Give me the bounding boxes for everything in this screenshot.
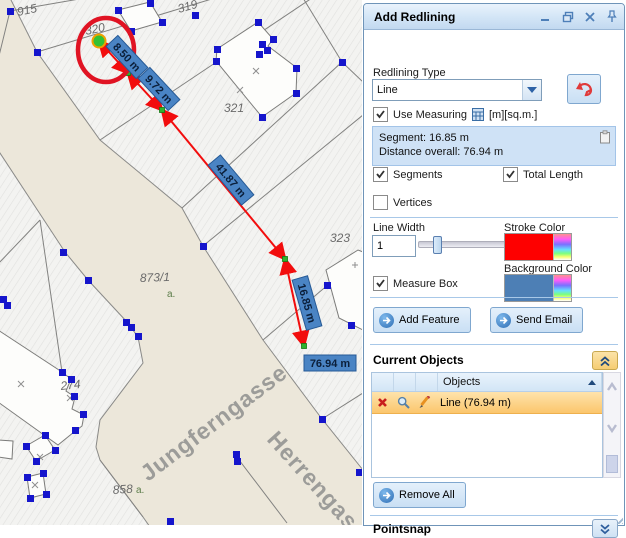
pin-icon[interactable] (606, 10, 618, 23)
table-header[interactable]: Objects (372, 373, 602, 392)
use-measuring-checkbox[interactable] (373, 107, 388, 122)
clipboard-icon[interactable] (599, 130, 611, 144)
segments-row: Segments (373, 167, 443, 182)
chevron-down-icon[interactable] (522, 80, 541, 100)
remove-all-label: Remove All (399, 489, 455, 501)
scrollbar-thumb[interactable] (606, 455, 618, 473)
segments-label: Segments (393, 169, 443, 181)
stroke-color-swatch[interactable] (504, 233, 572, 261)
start-point (93, 35, 106, 48)
delete-icon (377, 397, 388, 408)
send-email-button[interactable]: Send Email (490, 307, 583, 333)
divider-1 (370, 217, 618, 218)
restore-icon[interactable] (562, 11, 574, 23)
slider-thumb[interactable] (433, 236, 442, 254)
calculator-icon (472, 108, 484, 121)
table-scrollbar[interactable] (603, 372, 621, 478)
measure-summary-box: Segment: 16.85 m Distance overall: 76.94… (372, 126, 616, 166)
object-row[interactable]: Line (76.94 m) (372, 392, 602, 414)
total-length-label: Total Length (523, 169, 583, 181)
measuring-units-label: [m][sq.m.] (489, 109, 537, 121)
delete-object-button[interactable] (372, 397, 393, 408)
resize-grip[interactable] (611, 512, 623, 524)
parcel-label-323: 323 (330, 231, 350, 245)
zoom-to-object-button[interactable] (393, 396, 414, 409)
measure-box-label: Measure Box (393, 278, 458, 290)
pointsnap-title: Pointsnap (373, 522, 431, 536)
outbuilding-3 (0, 440, 13, 459)
arrow-right-icon (379, 488, 394, 503)
overall-summary: Distance overall: 76.94 m (379, 146, 503, 158)
divider-3 (370, 344, 618, 345)
segments-checkbox[interactable] (373, 167, 388, 182)
parcel-label-858: 858 (112, 482, 133, 497)
small-mark-a1: a. (167, 289, 175, 300)
current-objects-table[interactable]: Objects (371, 372, 603, 478)
undo-arrow-icon (574, 81, 594, 97)
sort-ascending-icon[interactable] (588, 380, 596, 385)
use-measuring-label: Use Measuring (393, 109, 467, 121)
magnifier-icon (397, 396, 410, 409)
minimize-icon[interactable] (540, 11, 552, 23)
vertices-row: Vertices (373, 195, 432, 210)
send-email-label: Send Email (516, 314, 572, 326)
close-icon[interactable] (584, 11, 596, 23)
total-length-checkbox[interactable] (503, 167, 518, 182)
arrow-right-icon (496, 313, 511, 328)
use-measuring-row: Use Measuring [m][sq.m.] (373, 107, 537, 122)
chevrons-up-icon (598, 355, 612, 367)
total-length-row: Total Length (503, 167, 583, 182)
map-canvas[interactable]: Jungferngasse Herrengasse 915 320 319 32… (0, 0, 362, 525)
scroll-up-icon[interactable] (606, 379, 618, 397)
remove-all-button[interactable]: Remove All (373, 482, 466, 508)
divider-4 (370, 515, 618, 516)
chevrons-down-icon (598, 523, 612, 535)
scroll-down-icon[interactable] (606, 419, 618, 437)
arrow-right-icon (379, 313, 394, 328)
add-feature-button[interactable]: Add Feature (373, 307, 471, 333)
redlining-type-value: Line (373, 84, 522, 96)
vertices-checkbox[interactable] (373, 195, 388, 210)
vertices-label: Vertices (393, 197, 432, 209)
parcel-label-321: 321 (224, 101, 244, 115)
add-feature-label: Add Feature (399, 314, 460, 326)
stroke-color-value[interactable] (505, 234, 553, 260)
redlining-panel: Add Redlining Redlining Type Line Use Me… (363, 3, 625, 526)
redlining-type-label: Redlining Type (373, 67, 446, 79)
collapse-section-button[interactable] (592, 351, 618, 370)
undo-button[interactable] (567, 74, 601, 104)
stroke-color-picker-icon[interactable] (553, 234, 571, 260)
svg-text:76.94 m: 76.94 m (310, 358, 351, 370)
measure-box-checkbox[interactable] (373, 276, 388, 291)
parcel-label-873-1: 873/1 (140, 270, 171, 285)
redlining-type-select[interactable]: Line (372, 79, 542, 101)
divider-2 (370, 297, 618, 298)
line-width-slider[interactable] (418, 241, 510, 248)
objects-column-header[interactable]: Objects (443, 376, 584, 388)
pencil-icon (418, 396, 431, 409)
edit-object-button[interactable] (414, 396, 435, 409)
measure-label-76-94: 76.94 m (304, 355, 356, 371)
segment-summary: Segment: 16.85 m (379, 132, 469, 144)
measure-box-row: Measure Box (373, 276, 458, 291)
line-width-input[interactable] (372, 235, 416, 257)
line-width-label: Line Width (373, 222, 425, 234)
small-mark-a2: a. (136, 485, 144, 496)
panel-title: Add Redlining (374, 10, 455, 24)
current-objects-title: Current Objects (373, 353, 464, 367)
object-row-label: Line (76.94 m) (435, 397, 511, 409)
panel-titlebar[interactable]: Add Redlining (364, 4, 624, 30)
